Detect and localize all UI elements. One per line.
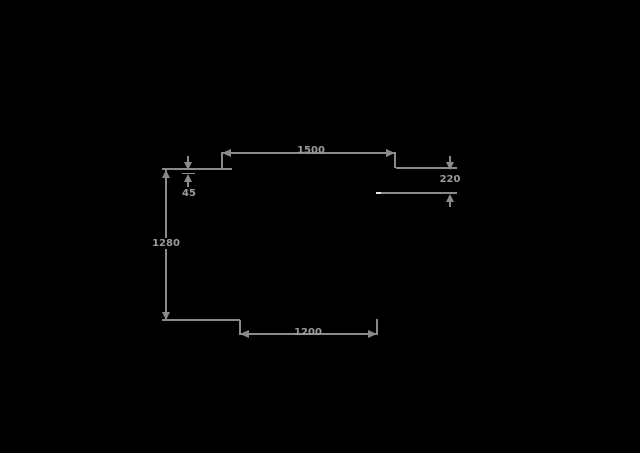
thickness-dimension-label: 45 xyxy=(174,188,204,199)
left-extension-line-top xyxy=(162,168,232,170)
arrow-left-icon xyxy=(222,149,231,157)
bottom-dimension-label: 1200 xyxy=(278,327,338,338)
thickness-lower-arrow-shaft xyxy=(187,181,189,187)
arrow-right-icon xyxy=(386,149,395,157)
arrow-up-icon xyxy=(162,170,170,178)
drawing-canvas: 1500 45 1280 220 1200 xyxy=(0,0,640,453)
arrow-down-icon xyxy=(446,162,454,170)
arrow-left-icon xyxy=(240,330,249,338)
arrow-down-icon xyxy=(184,162,192,170)
left-extension-line-bottom xyxy=(162,319,240,321)
top-dimension-label: 1500 xyxy=(281,145,341,156)
right-dimension-label: 220 xyxy=(430,174,470,185)
left-dimension-label: 1280 xyxy=(146,238,186,249)
right-lower-arrow-shaft xyxy=(449,201,451,207)
arrow-right-icon xyxy=(368,330,377,338)
